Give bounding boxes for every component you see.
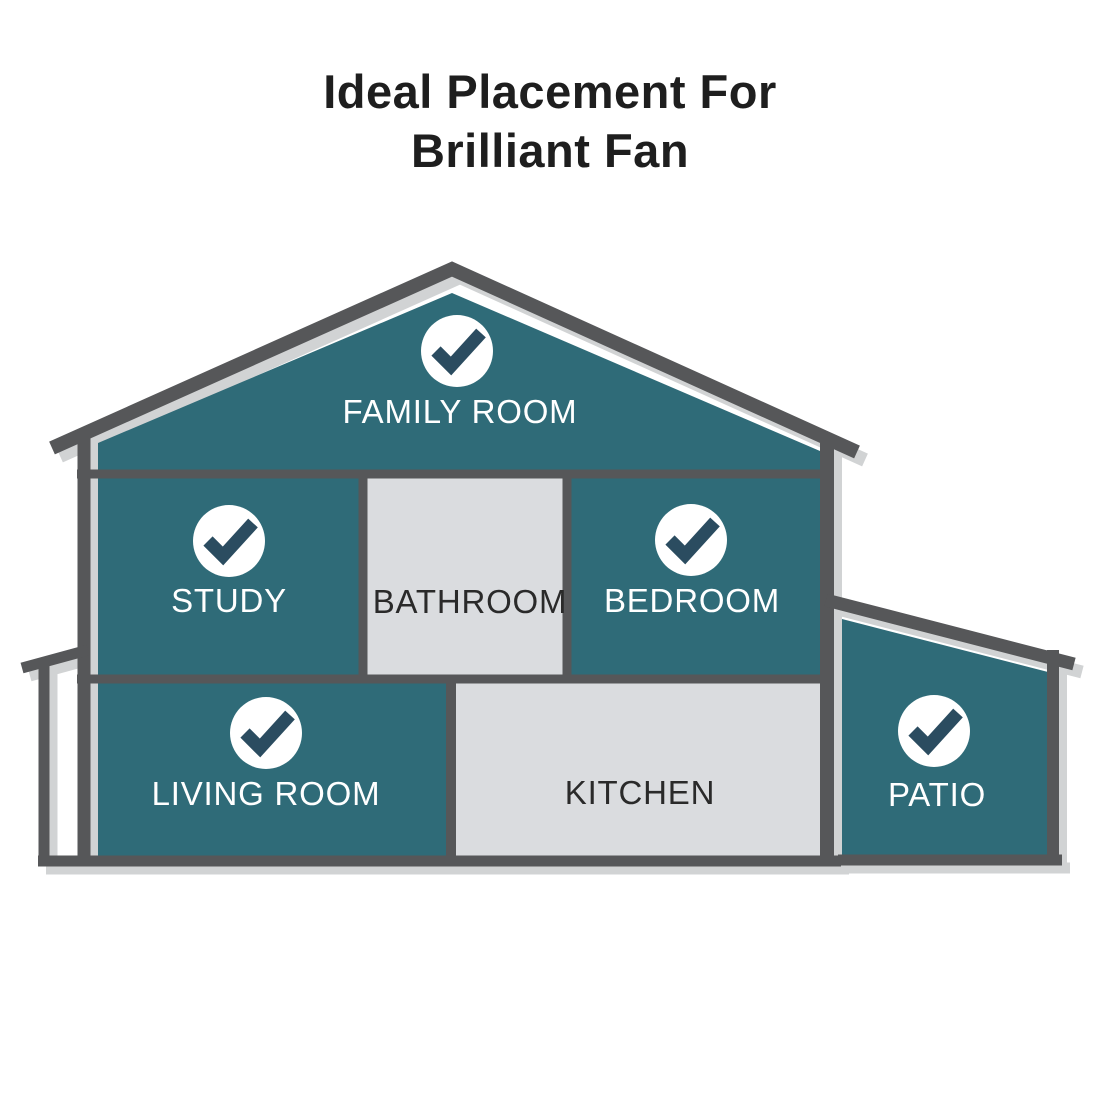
label-study: STUDY (171, 582, 287, 619)
room-study (98, 470, 359, 684)
check-icon-living-room (230, 697, 302, 769)
label-kitchen: KITCHEN (565, 774, 715, 811)
check-icon-patio (898, 695, 970, 767)
label-family-room: FAMILY ROOM (343, 393, 578, 430)
room-bathroom (359, 470, 567, 684)
room-bedroom (567, 470, 820, 684)
check-icon-bedroom (655, 504, 727, 576)
title-line-2: Brilliant Fan (411, 124, 689, 177)
room-kitchen (446, 675, 827, 861)
fan-placement-infographic: Ideal Placement For Brilliant Fan (0, 0, 1100, 1100)
label-patio: PATIO (888, 776, 986, 813)
label-bathroom: BATHROOM (373, 583, 568, 620)
house-cross-section-diagram: Ideal Placement For Brilliant Fan (0, 0, 1100, 1100)
label-living-room: LIVING ROOM (152, 775, 381, 812)
title-line-1: Ideal Placement For (323, 65, 777, 118)
check-icon-family-room (421, 315, 493, 387)
check-icon-study (193, 505, 265, 577)
label-bedroom: BEDROOM (604, 582, 780, 619)
